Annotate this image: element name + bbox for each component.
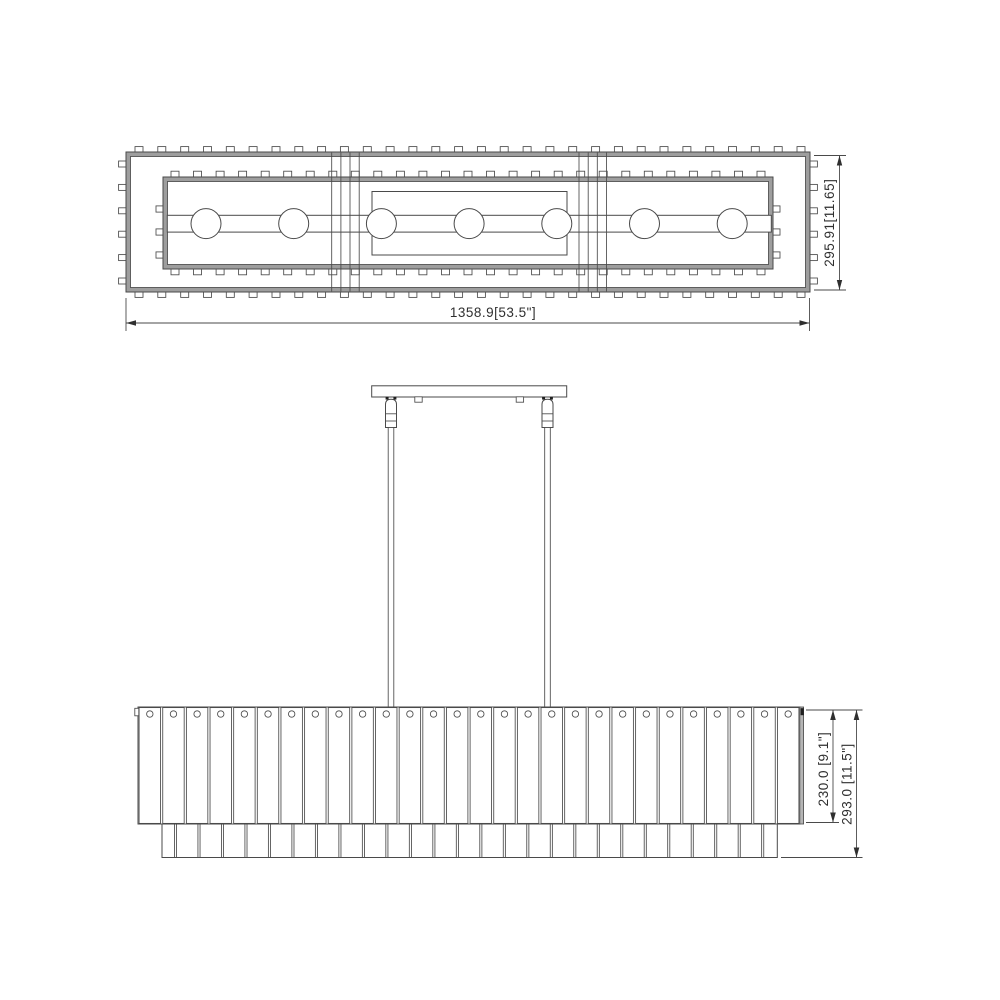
crystal-tab (318, 292, 326, 298)
crystal-tab (810, 255, 817, 261)
crystal-tab (204, 147, 212, 153)
crystal-tab (156, 229, 163, 235)
slat-pin (525, 711, 531, 717)
crystal-tab (554, 171, 562, 177)
crystal-tab (757, 269, 765, 275)
crystal-tab (194, 171, 202, 177)
bulb (454, 209, 484, 239)
crystal-tab (622, 171, 630, 177)
slat-pin (501, 711, 507, 717)
crystal-slat (707, 708, 728, 824)
hanger-rod (388, 428, 394, 708)
crystal-tab (592, 292, 600, 298)
canopy-hook (415, 397, 422, 402)
crystal-tab (667, 269, 675, 275)
slat-pin (690, 711, 696, 717)
crystal-tab (396, 171, 404, 177)
crystal-tab (546, 292, 554, 298)
crystal-tab (577, 269, 585, 275)
crystal-tab (455, 292, 463, 298)
crystal-tab (409, 292, 417, 298)
crystal-tab (194, 269, 202, 275)
crystal-tab (554, 269, 562, 275)
crystal-slat (683, 708, 704, 824)
width-dimension: 1358.9[53.5"] (126, 298, 810, 331)
crystal-tab (306, 171, 314, 177)
slat-pin (643, 711, 649, 717)
crystal-tab (810, 208, 817, 214)
crystal-tab (464, 269, 472, 275)
bulb (630, 209, 660, 239)
crystal-tab (284, 269, 292, 275)
bulb (542, 209, 572, 239)
canopy-hook (516, 397, 523, 402)
crystal-tab (432, 292, 440, 298)
front-view (135, 386, 804, 858)
slat-pin (407, 711, 413, 717)
crystal-tab (712, 171, 720, 177)
crystal-tab (810, 231, 817, 237)
crystal-slat (777, 708, 798, 824)
crystal-tab (477, 147, 485, 153)
crystal-tab (284, 171, 292, 177)
slat-pin (218, 711, 224, 717)
crystal-tab (386, 292, 394, 298)
slat-pin (667, 711, 673, 717)
crystal-tab (318, 147, 326, 153)
slat-pin (359, 711, 365, 717)
crystal-slat (494, 708, 515, 824)
crystal-slat (470, 708, 491, 824)
slat-pin (714, 711, 720, 717)
crystal-tab (226, 147, 234, 153)
crystal-tab (119, 208, 126, 214)
crystal-tab (119, 161, 126, 167)
slat-pin (761, 711, 767, 717)
crystal-tab (660, 292, 668, 298)
crystal-slat (612, 708, 633, 824)
crystal-tab (773, 229, 780, 235)
arrowhead (854, 848, 860, 858)
crystal-slat (588, 708, 609, 824)
crystal-tab (181, 292, 189, 298)
crystal-tab (569, 147, 577, 153)
crystal-tab (119, 255, 126, 261)
overall-height-dimension-label: 293.0 [11.5"] (840, 743, 855, 825)
slat-pin (549, 711, 555, 717)
crystal-tab (216, 269, 224, 275)
crystal-tab (689, 269, 697, 275)
crystal-slat (565, 708, 586, 824)
canopy-hooks (415, 397, 524, 402)
crystal-tab (119, 231, 126, 237)
crystal-tab (409, 147, 417, 153)
crystal-tab (667, 171, 675, 177)
crystal-slat (659, 708, 680, 824)
shade-end-cap-right (801, 708, 804, 715)
crystal-tab (204, 292, 212, 298)
crystal-tab (774, 147, 782, 153)
crystal-slat (541, 708, 562, 824)
crystal-slat (636, 708, 657, 824)
mount-screw (550, 397, 553, 400)
crystal-tab (249, 292, 257, 298)
crystal-tab (735, 171, 743, 177)
slat-pin (336, 711, 342, 717)
slat-pin (194, 711, 200, 717)
crystal-tab (135, 147, 143, 153)
mount-screw (386, 397, 389, 400)
crystal-tab (419, 171, 427, 177)
depth-dimension: 295.91[11.65] (814, 156, 846, 291)
crystal-tab (295, 147, 303, 153)
crystal-tab (729, 147, 737, 153)
crystal-tab (622, 269, 630, 275)
crystal-slat (139, 708, 160, 824)
crystal-tab (419, 269, 427, 275)
slat-pin (241, 711, 247, 717)
slat-pin (288, 711, 294, 717)
slat-pin (170, 711, 176, 717)
crystal-tab (487, 171, 495, 177)
crystal-slat (376, 708, 397, 824)
crystal-tab (374, 171, 382, 177)
hanger-rods (386, 397, 554, 707)
top-view (119, 147, 818, 298)
crystal-tab (295, 292, 303, 298)
crystal-slat (446, 708, 467, 824)
crystal-tab (351, 171, 359, 177)
crystal-tab (351, 269, 359, 275)
crystal-tab (689, 171, 697, 177)
hanger-rod (545, 428, 551, 708)
chandelier-dimension-drawing: 1358.9[53.5"] 295.91[11.65] 230.0 [9.1"] (0, 0, 1000, 1000)
crystal-tab (171, 171, 179, 177)
crystal-tab (599, 269, 607, 275)
slat-pin (619, 711, 625, 717)
crystal-tab (135, 292, 143, 298)
crystal-tab (239, 269, 247, 275)
crystal-tab (181, 147, 189, 153)
bulb (279, 209, 309, 239)
crystal-tab (509, 269, 517, 275)
ceiling-canopy (372, 386, 567, 397)
crystal-tab (226, 292, 234, 298)
crystal-tab (158, 147, 166, 153)
arrowhead (126, 320, 136, 325)
crystal-tab (477, 292, 485, 298)
crystal-tab (306, 269, 314, 275)
crystal-tab (249, 147, 257, 153)
crystal-slat (352, 708, 373, 824)
crystal-slat (399, 708, 420, 824)
crystal-tab (156, 252, 163, 258)
crystal-slat (517, 708, 538, 824)
crystal-slat (305, 708, 326, 824)
crystal-slat (186, 708, 207, 824)
crystal-tab (644, 269, 652, 275)
slat-pin (312, 711, 318, 717)
crystal-slat (163, 708, 184, 824)
crystal-tab (396, 269, 404, 275)
crystal-slat (328, 708, 349, 824)
crystal-tab (774, 292, 782, 298)
arrowhead (854, 710, 860, 720)
crystal-tab (532, 171, 540, 177)
crystal-slat (281, 708, 302, 824)
crystal-tab (442, 171, 450, 177)
lower-tier-body (162, 824, 777, 858)
crystal-tab (329, 269, 337, 275)
crystal-tab (261, 171, 269, 177)
crystal-tab (374, 269, 382, 275)
shade-height-dimension-label: 230.0 [9.1"] (816, 732, 831, 807)
crystal-tab (261, 269, 269, 275)
crystal-tab (272, 147, 280, 153)
crystal-tab (797, 147, 805, 153)
crystal-tab (773, 206, 780, 212)
crystal-tab (523, 147, 531, 153)
crystal-tab (500, 147, 508, 153)
crystal-tab (340, 147, 348, 153)
crystal-tab (216, 171, 224, 177)
crystal-tab (751, 292, 759, 298)
crystal-tab (523, 292, 531, 298)
crystal-tab (546, 147, 554, 153)
width-dimension-label: 1358.9[53.5"] (450, 305, 536, 320)
crystal-tab (735, 269, 743, 275)
slat-pin (265, 711, 271, 717)
shade-end-cap-left (135, 708, 139, 716)
crystal-tab (810, 278, 817, 284)
crystal-tab (432, 147, 440, 153)
arrowhead (837, 156, 842, 166)
crystal-tab (487, 269, 495, 275)
crystal-tab (119, 278, 126, 284)
slat-pin (383, 711, 389, 717)
slat-pin (430, 711, 436, 717)
crystal-slat (234, 708, 255, 824)
crystal-tab (158, 292, 166, 298)
crystal-slat (210, 708, 231, 824)
slat-pin (478, 711, 484, 717)
crystal-tab (773, 252, 780, 258)
crystal-tab (272, 292, 280, 298)
arrowhead (837, 280, 842, 290)
crystal-slat (730, 708, 751, 824)
crystal-tab (637, 292, 645, 298)
crystal-tab (442, 269, 450, 275)
bulb (191, 209, 221, 239)
crystal-tab (810, 184, 817, 190)
crystal-tab (599, 171, 607, 177)
slat-pin (454, 711, 460, 717)
crystal-tab (386, 147, 394, 153)
crystal-tab (797, 292, 805, 298)
crystal-tab (363, 147, 371, 153)
crystal-tab (569, 292, 577, 298)
crystal-tab (660, 147, 668, 153)
crystal-tab (363, 292, 371, 298)
crystal-tab (171, 269, 179, 275)
crystal-tab (644, 171, 652, 177)
arrowhead (830, 813, 836, 823)
depth-dimension-label: 295.91[11.65] (822, 179, 837, 267)
crystal-tab (712, 269, 720, 275)
crystal-tab (637, 147, 645, 153)
crystal-slat (257, 708, 278, 824)
slat-pin (572, 711, 578, 717)
crystal-tab (751, 147, 759, 153)
crystal-slat (754, 708, 775, 824)
slat-pin (147, 711, 153, 717)
crystal-tab (614, 147, 622, 153)
crystal-tab (577, 171, 585, 177)
crystal-tab (810, 161, 817, 167)
crystal-tab (509, 171, 517, 177)
crystal-tab (757, 171, 765, 177)
crystal-tab (329, 171, 337, 177)
crystal-tab (500, 292, 508, 298)
arrowhead (800, 320, 810, 325)
crystal-tab (119, 184, 126, 190)
crystal-tab (683, 147, 691, 153)
crystal-tab (706, 147, 714, 153)
drawing-canvas: 1358.9[53.5"] 295.91[11.65] 230.0 [9.1"] (0, 0, 1000, 1000)
slat-pin (785, 711, 791, 717)
crystal-tab (532, 269, 540, 275)
mount-screw (393, 397, 396, 400)
crystal-slat (423, 708, 444, 824)
crystal-tab (156, 206, 163, 212)
arrowhead (830, 710, 836, 720)
bulb (717, 209, 747, 239)
mount-screw (542, 397, 545, 400)
crystal-tab (464, 171, 472, 177)
crystal-tab (729, 292, 737, 298)
bulb (366, 209, 396, 239)
crystal-tab (706, 292, 714, 298)
crystal-tab (455, 147, 463, 153)
crystal-tab (683, 292, 691, 298)
crystal-tab (592, 147, 600, 153)
slat-pin (596, 711, 602, 717)
shade-end-strip (800, 707, 804, 824)
crystal-tab (614, 292, 622, 298)
slat-pin (738, 711, 744, 717)
crystal-tab (239, 171, 247, 177)
crystal-tab (340, 292, 348, 298)
